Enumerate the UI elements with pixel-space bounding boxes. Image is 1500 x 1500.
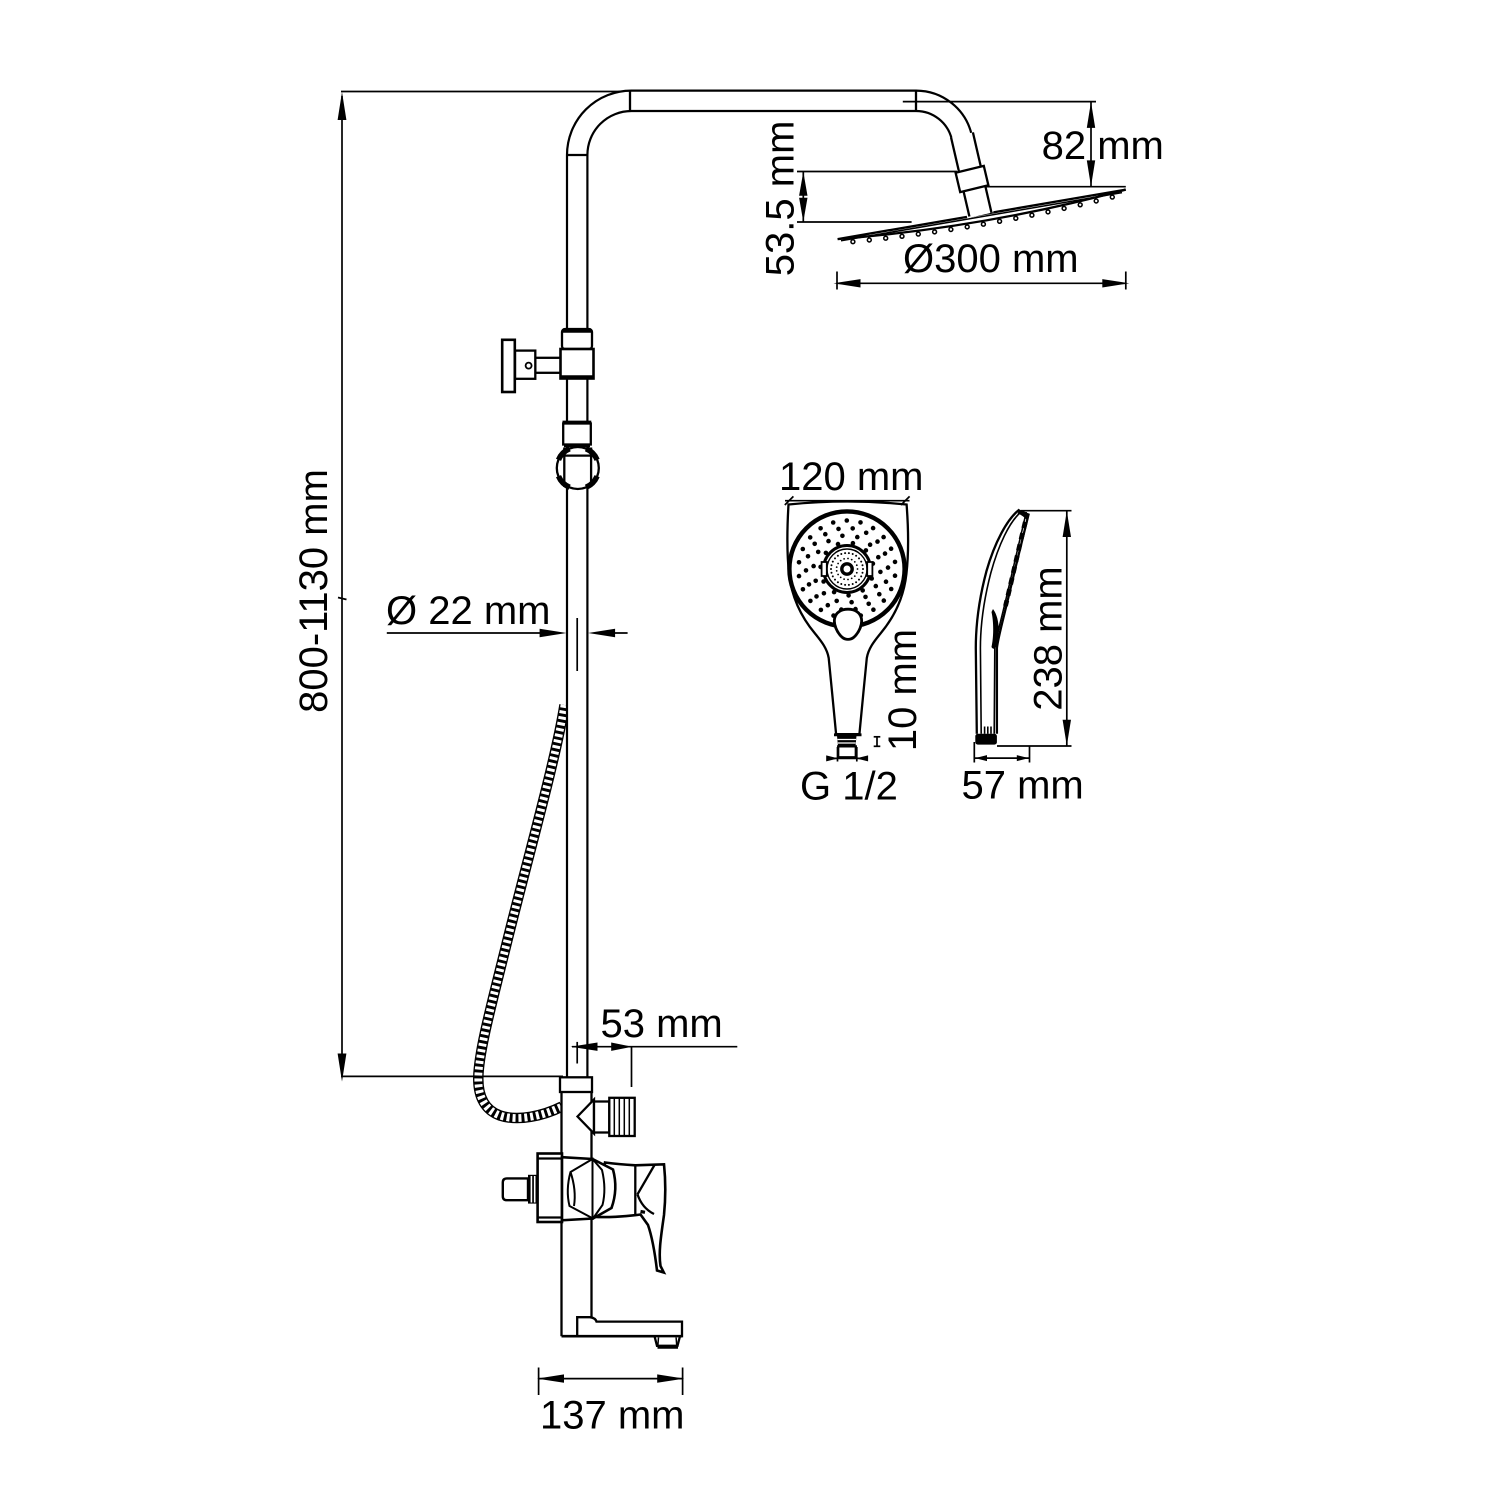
svg-text:120 mm: 120 mm xyxy=(779,455,924,499)
svg-text:800-1130 mm: 800-1130 mm xyxy=(292,469,336,713)
svg-text:82 mm: 82 mm xyxy=(1042,124,1164,168)
svg-text:53.5 mm: 53.5 mm xyxy=(759,121,803,277)
svg-text:57 mm: 57 mm xyxy=(962,764,1084,808)
svg-text:53 mm: 53 mm xyxy=(601,1002,723,1046)
svg-text:137 mm: 137 mm xyxy=(540,1394,685,1438)
svg-text:238 mm: 238 mm xyxy=(1027,566,1071,711)
svg-text:10 mm: 10 mm xyxy=(881,629,925,751)
svg-text:G 1/2: G 1/2 xyxy=(800,765,898,809)
svg-text:Ø300 mm: Ø300 mm xyxy=(903,237,1079,281)
svg-text:Ø 22 mm: Ø 22 mm xyxy=(386,589,550,633)
